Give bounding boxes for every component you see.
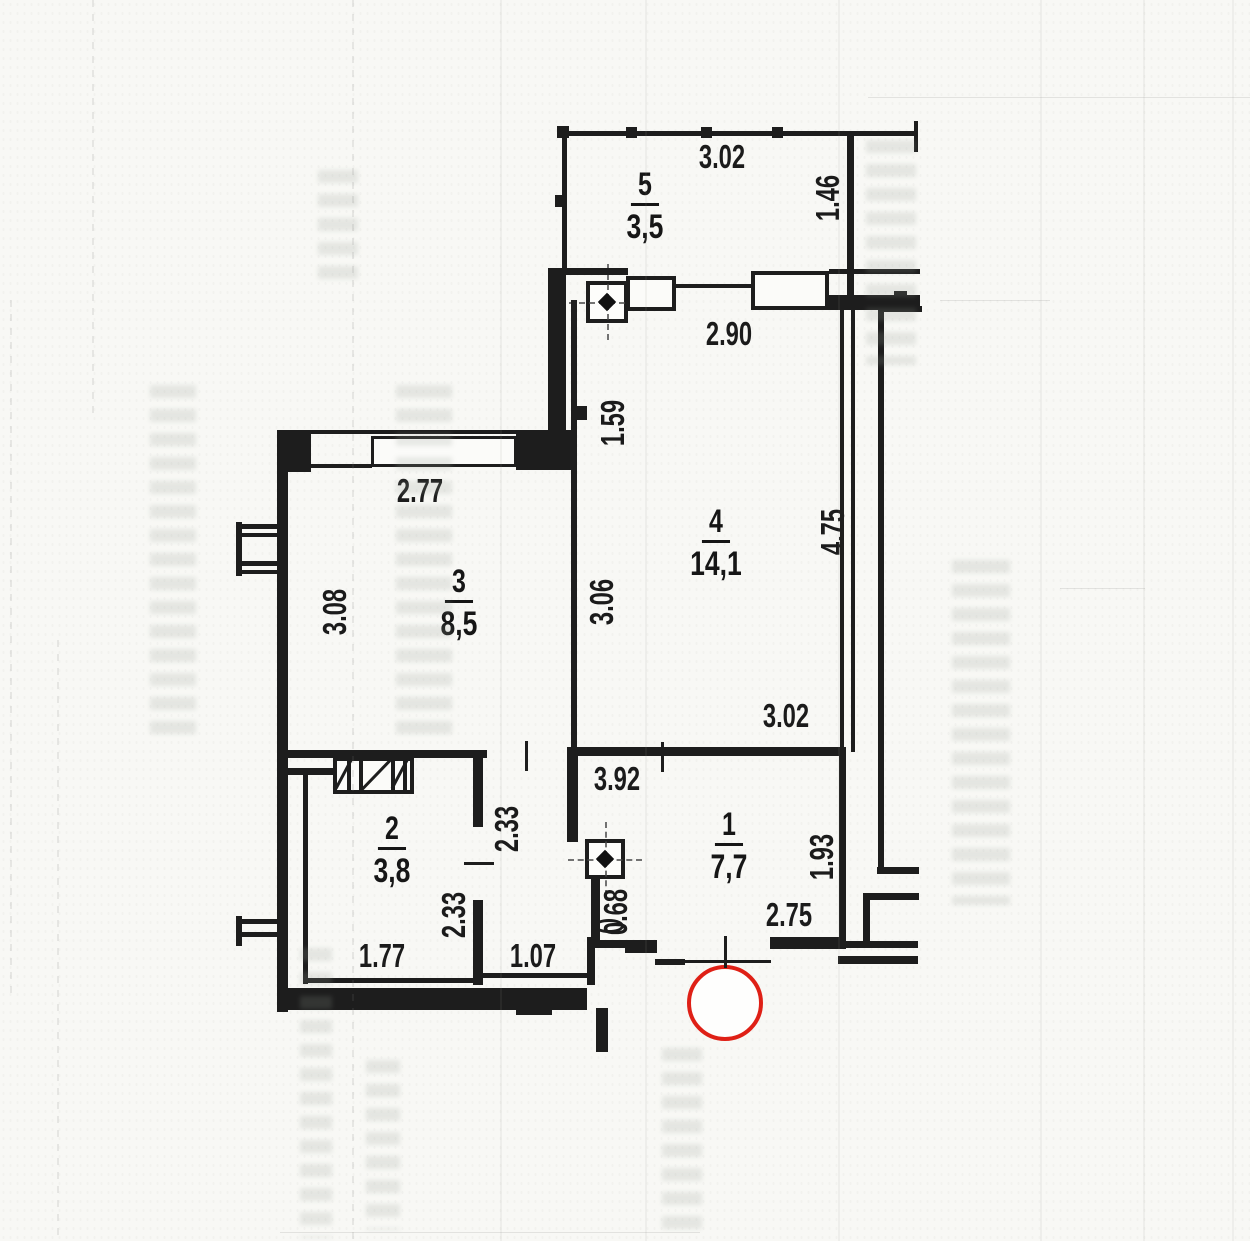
balcony-window: [751, 271, 829, 310]
room-number: 2: [378, 812, 406, 850]
room-label-4: 4 14,1: [668, 505, 764, 583]
wall-segment: [625, 940, 657, 953]
scan-line-artifact: [838, 0, 840, 1241]
dim-room4-width: 3.02: [746, 700, 825, 732]
room-area: 3,8: [355, 853, 430, 890]
wall-segment: [483, 973, 589, 978]
dim-room4-left-depth: 3.06: [586, 562, 618, 641]
wall-segment: [473, 900, 483, 985]
wall-segment: [242, 932, 280, 937]
wall-segment: [277, 430, 288, 1012]
vent-shaft-block: [333, 757, 414, 794]
dim-room4-depth: 4.75: [817, 492, 849, 571]
wall-segment: [562, 131, 918, 136]
wall-segment: [838, 956, 918, 964]
bleed-through-text-artifact: [396, 385, 452, 745]
wall-segment: [676, 284, 754, 288]
dim-corridor-lower: 2.33: [438, 875, 470, 954]
wall-segment: [555, 195, 566, 207]
scan-line-artifact: [868, 97, 1250, 98]
bleed-through-text-artifact: [866, 140, 916, 365]
scanned-floorplan-page: { "rooms": { "r5": {"number": "5", "area…: [0, 0, 1250, 1241]
wall-segment: [863, 893, 870, 948]
room-area: 7,7: [692, 849, 767, 886]
scan-line-artifact: [500, 0, 502, 1241]
bleed-through-text-artifact: [952, 560, 1010, 905]
wall-segment: [577, 406, 587, 420]
dim-room2-width: 1.77: [342, 940, 421, 972]
duct-diamond-icon: [596, 850, 614, 868]
wall-segment: [548, 270, 566, 438]
wall-segment: [683, 960, 771, 963]
bleed-through-text-artifact: [150, 385, 196, 740]
wall-segment: [878, 306, 884, 874]
wall-segment: [242, 524, 287, 529]
vent-hatch-line: [361, 759, 392, 791]
wall-segment: [473, 756, 483, 827]
wall-segment: [567, 756, 578, 842]
wall-segment: [277, 750, 487, 758]
wall-segment: [557, 126, 569, 138]
scan-line-artifact: [280, 1232, 700, 1233]
scan-line-artifact: [1040, 0, 1042, 1241]
wall-segment: [242, 561, 287, 566]
wall-segment: [596, 1008, 608, 1052]
wall-segment: [591, 940, 627, 948]
scan-line-artifact: [645, 0, 647, 1241]
dim-balcony-width: 3.02: [682, 141, 761, 173]
balcony-door: [626, 276, 676, 311]
wall-segment: [851, 310, 855, 752]
room-label-1: 1 7,7: [681, 808, 777, 886]
wall-segment: [242, 570, 287, 574]
scan-line-artifact: [940, 300, 1050, 301]
duct-diamond-icon: [598, 293, 616, 311]
dim-corridor-width: 1.07: [493, 940, 572, 972]
scan-line-artifact: [1232, 0, 1234, 1241]
wall-segment: [516, 434, 572, 470]
wall-segment: [724, 936, 727, 968]
dim-room3-depth: 3.08: [319, 572, 351, 651]
entrance-marker-circle: [687, 965, 763, 1041]
wall-segment: [287, 768, 335, 775]
wall-segment: [877, 867, 919, 874]
wall-segment: [236, 522, 242, 576]
scan-line-artifact: [1060, 588, 1145, 589]
wall-segment: [308, 464, 372, 468]
wall-segment: [863, 893, 919, 900]
wall-segment: [567, 747, 846, 756]
wall-segment: [516, 1008, 552, 1015]
wall-segment: [661, 742, 664, 772]
scan-line-artifact: [92, 0, 94, 420]
room-number: 4: [702, 505, 730, 543]
wall-segment: [242, 919, 280, 924]
wall-segment: [772, 127, 783, 138]
wall-segment: [701, 127, 712, 138]
floorplan-drawing: 5 3,5 4 14,1 3 8,5 2 3,8 1 7,7 3.02 2.90…: [0, 0, 1250, 1241]
wall-segment: [846, 941, 918, 948]
bleed-through-text-artifact: [300, 948, 332, 1238]
dim-hall-right-depth: 1.93: [806, 817, 838, 896]
wall-segment: [464, 862, 494, 865]
wall-segment: [770, 937, 846, 949]
wall-segment: [571, 300, 577, 754]
scan-line-artifact: [352, 0, 354, 1241]
scan-line-artifact: [57, 640, 59, 1241]
scan-line-artifact: [1143, 0, 1145, 1241]
scan-line-artifact: [10, 300, 12, 1000]
wall-segment: [626, 127, 637, 138]
vent-duct-symbol-top: [586, 281, 628, 323]
wall-segment: [655, 959, 685, 965]
dim-wall-offset: 1.59: [597, 383, 629, 462]
room-label-2: 2 3,8: [344, 812, 440, 890]
bleed-through-text-artifact: [366, 1060, 400, 1230]
wall-segment: [525, 741, 528, 771]
wall-segment: [839, 756, 846, 942]
wall-segment: [242, 533, 287, 537]
wall-segment: [840, 310, 844, 752]
dim-window-wall: 2.90: [689, 318, 768, 350]
dim-hall-bottom-width: 2.75: [749, 899, 828, 931]
room-number: 1: [715, 808, 743, 846]
dim-corridor-upper: 2.33: [491, 789, 523, 868]
bleed-through-text-artifact: [662, 1048, 702, 1233]
room-area: 14,1: [679, 546, 754, 583]
wall-segment: [591, 877, 600, 943]
wall-segment: [847, 133, 854, 299]
